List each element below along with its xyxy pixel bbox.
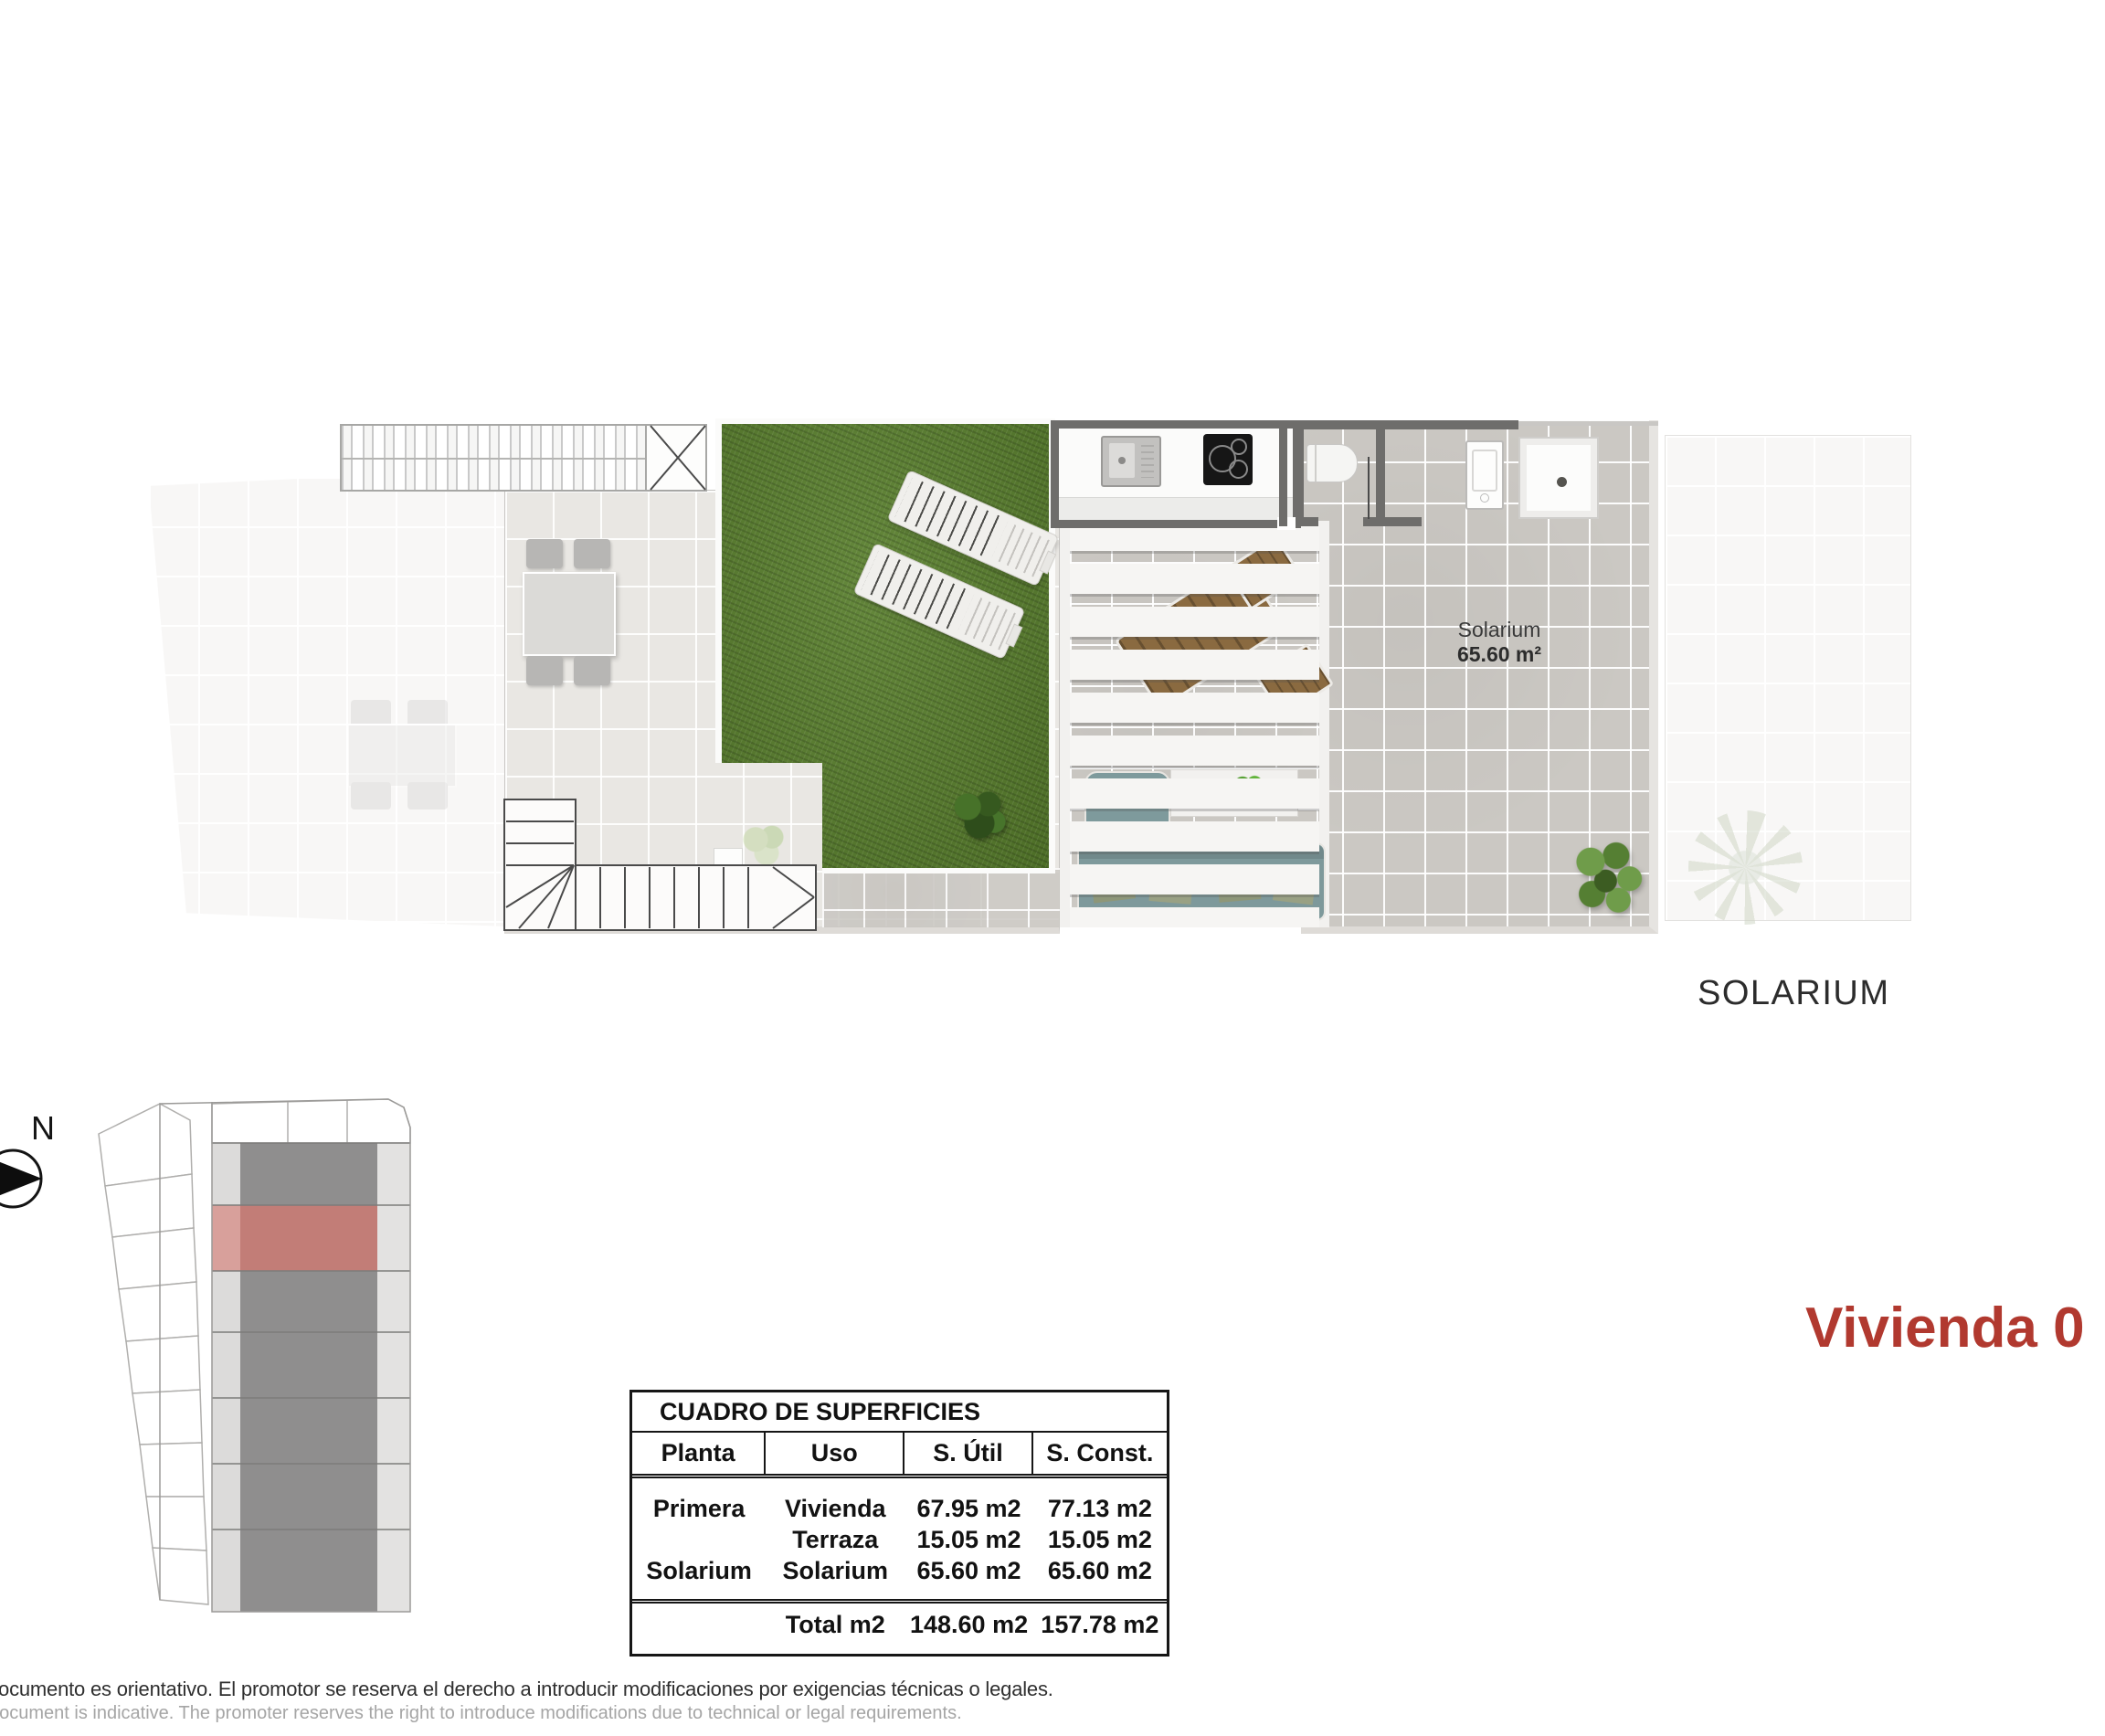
wall — [1376, 420, 1385, 526]
walkway — [822, 868, 1060, 927]
table-row: Solarium Solarium 65.60 m2 65.60 m2 — [632, 1555, 1167, 1586]
table-row: Primera Vivienda 67.95 m2 77.13 m2 — [632, 1493, 1167, 1524]
areas-table-title: CUADRO DE SUPERFICIES — [632, 1392, 1167, 1433]
areas-table: CUADRO DE SUPERFICIES Planta Uso S. Útil… — [629, 1390, 1169, 1657]
pale-plant — [736, 820, 791, 868]
col-uso: Uso — [766, 1433, 904, 1474]
wall — [1296, 420, 1304, 526]
areas-table-body: Primera Vivienda 67.95 m2 77.13 m2 Terra… — [632, 1478, 1167, 1586]
north-label: N — [31, 1109, 55, 1148]
ghost-dining-set — [340, 700, 463, 810]
wall — [1304, 517, 1318, 526]
site-plan — [73, 1093, 420, 1632]
summer-kitchen — [1051, 420, 1301, 528]
neighbour-solarium-right — [1665, 435, 1911, 921]
parapet — [1518, 421, 1658, 426]
leafy-plant — [1570, 839, 1645, 916]
hatch-end-box — [645, 426, 705, 490]
toilet — [1306, 444, 1358, 482]
kitchen-sink — [1101, 436, 1161, 487]
room-name: Solarium — [1458, 618, 1541, 641]
induction-hob — [1203, 434, 1253, 485]
brochure-page: { "page": {"type": "floor-plan-sheet"}, … — [0, 0, 2105, 1736]
level-label: SOLARIUM — [1698, 974, 1889, 1013]
unit-title: Vivienda 0 — [1805, 1296, 2085, 1360]
col-util: S. Útil — [904, 1433, 1032, 1474]
col-planta: Planta — [632, 1433, 766, 1474]
wall — [1304, 420, 1385, 429]
washing-machine — [1465, 440, 1504, 510]
room-label: Solarium 65.60 m² — [1422, 618, 1577, 667]
areas-table-header: Planta Uso S. Útil S. Const. — [632, 1433, 1167, 1478]
wall — [1385, 420, 1518, 429]
wall — [1363, 517, 1422, 526]
pergola-slats — [1070, 521, 1319, 927]
north-arrow-icon — [0, 1142, 53, 1215]
wall — [1279, 420, 1287, 526]
disclaimer-es: documento es orientativo. El promotor se… — [0, 1678, 1053, 1701]
shower-tray — [1518, 437, 1599, 519]
table-total-row: Total m2 148.60 m2 157.78 m2 — [632, 1599, 1167, 1646]
disclaimer-en: document is indicative. The promoter res… — [0, 1703, 962, 1724]
terrace-dining-set — [519, 539, 619, 685]
table-row: Terraza 15.05 m2 15.05 m2 — [632, 1524, 1167, 1555]
pergola — [1060, 521, 1329, 927]
room-area: 65.60 m² — [1457, 642, 1541, 666]
neighbour-pergola-strip — [340, 424, 707, 492]
ghost-palm — [1688, 810, 1803, 925]
col-const: S. Const. — [1033, 1433, 1167, 1474]
shrub — [950, 788, 1009, 842]
